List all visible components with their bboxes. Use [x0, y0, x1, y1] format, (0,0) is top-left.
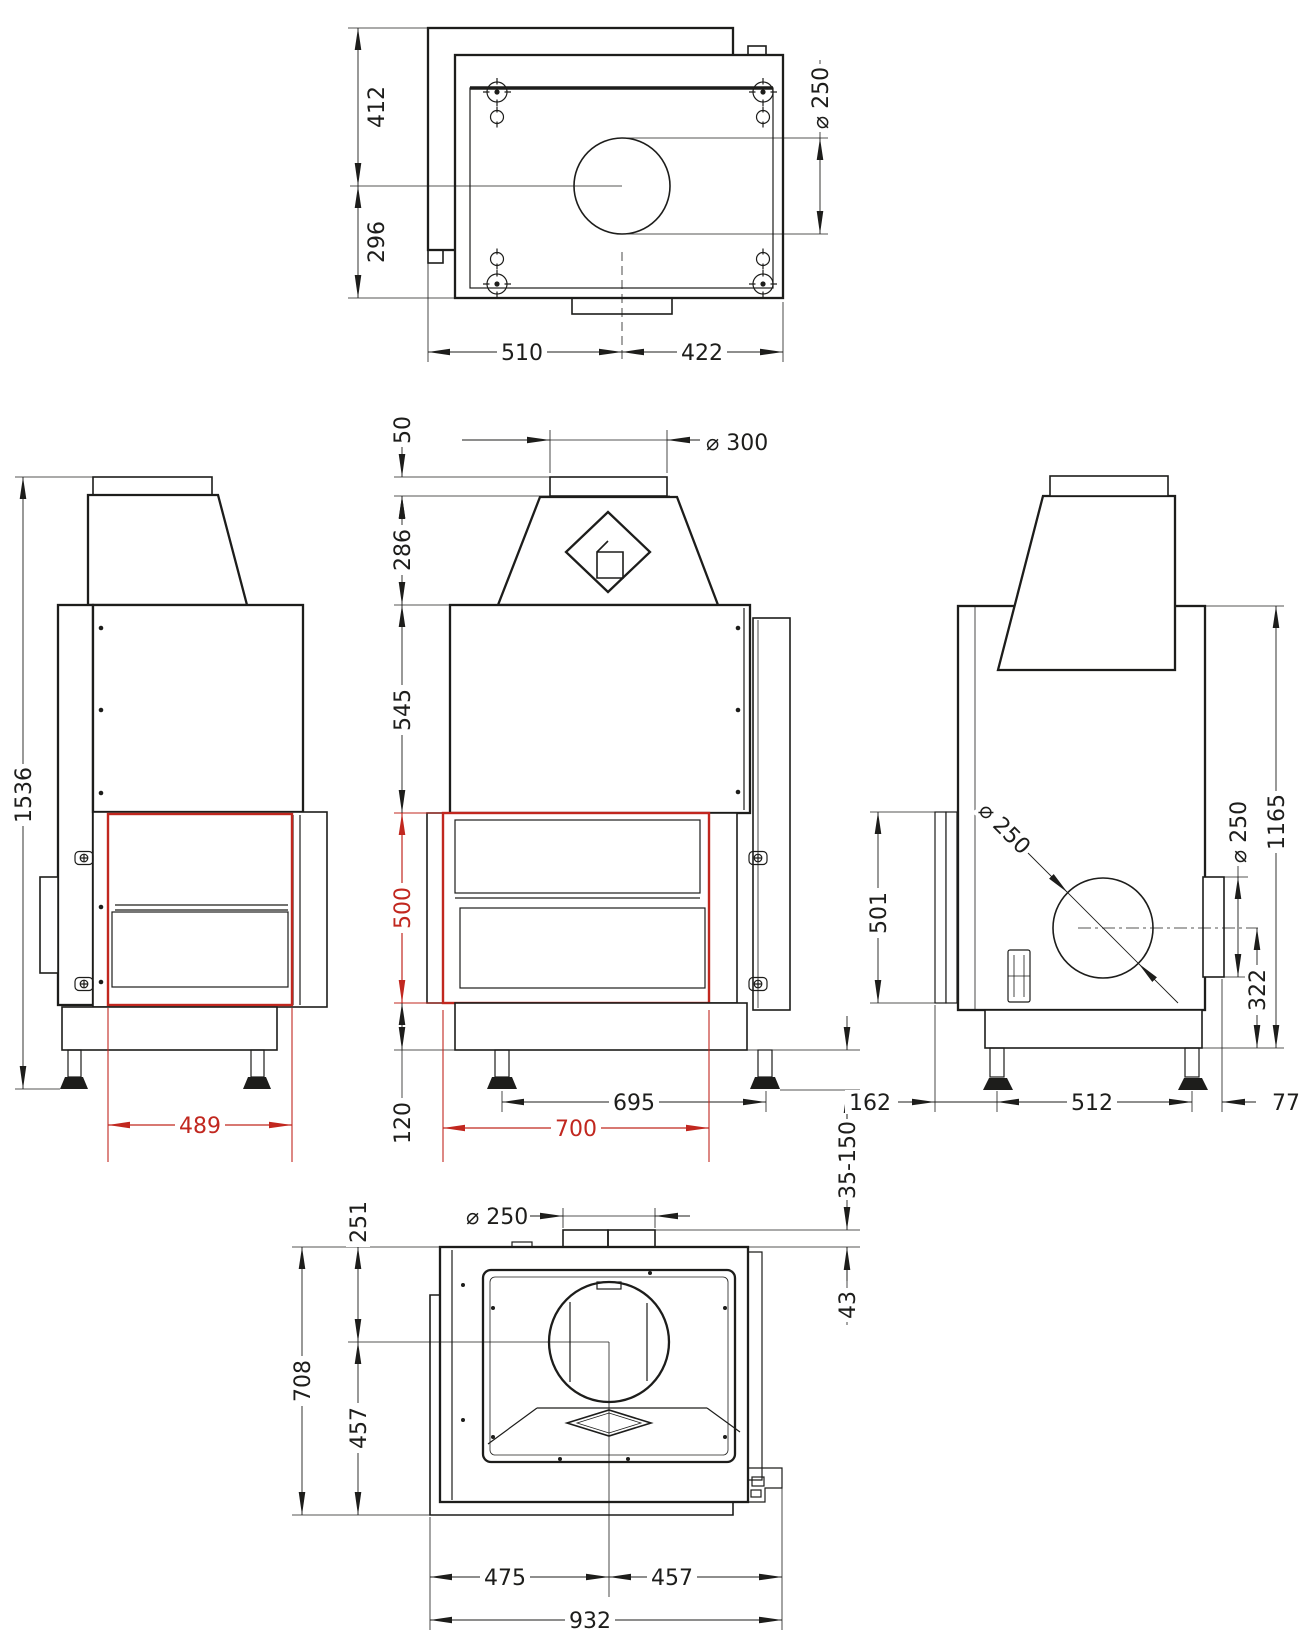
dim-label-286: 286: [391, 529, 416, 571]
right-door-strip-inner: [946, 812, 957, 1003]
dim-label-dia300: ⌀ 300: [706, 431, 768, 456]
dim-label-50: 50: [391, 416, 416, 444]
dim-label-457-width: 457: [651, 1566, 693, 1591]
fireplace-dimensional-drawing: 412 296 ⌀ 250 510 422: [0, 0, 1301, 1632]
dim-label-501: 501: [867, 892, 892, 934]
dim-label-500: 500: [391, 887, 416, 929]
dim-label-rear-dia250: ⌀ 250: [1227, 801, 1252, 863]
dim-label-top-dia250: ⌀ 250: [809, 67, 834, 129]
dim-label-412: 412: [365, 86, 390, 128]
right-door-strip-outer: [935, 812, 946, 1003]
dim-label-475: 475: [484, 1566, 526, 1591]
right-rear-stub: [1203, 877, 1224, 977]
dim-label-510: 510: [501, 341, 543, 366]
dim-label-1165: 1165: [1265, 794, 1290, 850]
dim-label-708: 708: [291, 1360, 316, 1402]
dim-label-489: 489: [179, 1114, 221, 1139]
dim-label-932: 932: [569, 1609, 611, 1632]
front-body: [450, 605, 750, 813]
left-rear-column: [58, 605, 93, 1005]
dim-label-457-depth: 457: [347, 1407, 372, 1449]
dim-label-35-150: 35-150: [836, 1121, 861, 1199]
dim-label-162: 162: [849, 1091, 891, 1116]
technical-drawing-page: 412 296 ⌀ 250 510 422: [0, 0, 1301, 1632]
dim-label-120: 120: [391, 1102, 416, 1144]
dim-label-695: 695: [613, 1091, 655, 1116]
dim-label-77: 77: [1272, 1091, 1300, 1116]
dim-label-700: 700: [555, 1117, 597, 1142]
dim-label-512: 512: [1071, 1091, 1113, 1116]
dim-label-43: 43: [836, 1291, 861, 1319]
front-flue-collar: [550, 477, 667, 496]
left-hood: [88, 495, 247, 605]
front-foot-2: [750, 1077, 780, 1089]
left-chimney-cap: [93, 477, 212, 495]
left-plinth: [62, 1007, 277, 1050]
left-upper-panel: [93, 605, 303, 812]
dim-label-545: 545: [391, 689, 416, 731]
front-right-return: [753, 618, 790, 1010]
dim-label-296: 296: [365, 221, 390, 263]
dim-label-422: 422: [681, 341, 723, 366]
dim-label-322: 322: [1246, 969, 1271, 1011]
right-chimney-cap: [1050, 476, 1168, 496]
front-plinth: [455, 1003, 747, 1050]
dim-label-251: 251: [347, 1201, 372, 1243]
dim-label-1536: 1536: [12, 767, 37, 823]
left-side-stub: [40, 877, 58, 973]
right-plinth: [985, 1010, 1202, 1048]
front-foot-1: [487, 1077, 517, 1089]
dim-label-bottom-dia250: ⌀ 250: [466, 1205, 528, 1230]
